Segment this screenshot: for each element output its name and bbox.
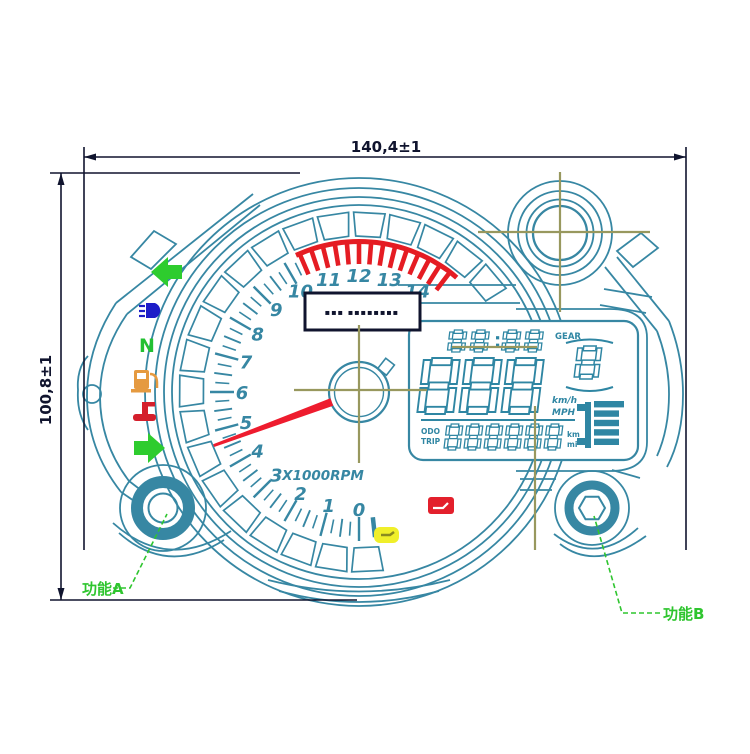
tach-tick: [239, 464, 251, 472]
height-dimension-label: 100,8±1: [37, 355, 55, 425]
speed-unit-mph: MPH: [552, 408, 576, 418]
button-a-ring: [137, 482, 189, 534]
tach-tick: [215, 401, 229, 402]
tach-tick: [243, 470, 257, 481]
tach-segment: [180, 375, 204, 407]
drawing-canvas: 01234567891011121314 X1000RPM GEAR km/h …: [0, 0, 750, 750]
warning-label-text: ▪▪▪ ▪▪▪▪▪▪▪▪: [325, 308, 399, 317]
function-a-label: 功能A: [82, 580, 124, 598]
tach-tick: [295, 509, 301, 522]
redline-bar: [436, 273, 449, 290]
housing-edge: [100, 314, 129, 481]
tach-tick: [264, 284, 273, 295]
warning-label-box: ▪▪▪ ▪▪▪▪▪▪▪▪: [305, 293, 420, 330]
tach-unit-label: X1000RPM: [281, 468, 364, 484]
redline-bar: [300, 255, 308, 274]
tach-tick: [218, 364, 232, 367]
tach-tick: [224, 336, 241, 343]
tach-segment: [387, 215, 420, 245]
tach-needle: [213, 398, 333, 447]
high-beam-indicator-icon: [139, 303, 160, 318]
fuel-pump-window: [137, 373, 146, 379]
fuel-pump-body: [134, 370, 149, 389]
button-b-center: [579, 497, 605, 520]
odo-unit-km: km: [567, 430, 580, 439]
oil-can-stem: [142, 402, 148, 415]
tach-scale-number: 8: [251, 324, 264, 345]
tach-tick: [340, 519, 342, 537]
width-dimension-label: 140,4±1: [351, 138, 421, 156]
oil-can-base: [133, 414, 156, 421]
fuel-warning-icon: [428, 497, 454, 514]
fuel-bar: [594, 429, 619, 435]
tach-segment: [352, 547, 384, 572]
high-beam-lamp: [146, 303, 160, 318]
tach-tick: [303, 510, 310, 527]
tach-tick: [223, 346, 236, 351]
tach-tick: [313, 515, 318, 528]
tach-scale-number: 13: [377, 270, 402, 291]
fuel-bar: [594, 401, 624, 407]
odo-unit-mi: mi: [567, 440, 577, 449]
tach-scale-number: 11: [316, 270, 341, 291]
engine-warning-icon: [374, 527, 399, 543]
redline-bar: [400, 251, 407, 271]
tach-tick: [251, 297, 262, 306]
tach-tick: [279, 500, 287, 512]
tach-tick: [270, 276, 281, 290]
tach-tick: [215, 353, 238, 359]
redline-bar: [311, 251, 318, 271]
mount-tab-hole: [83, 385, 101, 403]
colon-dot: [496, 336, 499, 339]
fuel-pump-hose: [150, 374, 157, 388]
housing-notch: [617, 233, 658, 267]
tach-tick: [230, 318, 251, 330]
redline-bar: [380, 245, 383, 266]
tach-tick: [215, 383, 229, 384]
neutral-indicator-icon: N: [139, 335, 155, 357]
tach-scale-number: 3: [270, 466, 283, 487]
tach-scale-number: 12: [346, 266, 371, 287]
dim-arrow-left: [84, 154, 96, 161]
tach-tick: [230, 449, 243, 455]
button-a-center: [149, 494, 178, 523]
tach-segment: [188, 306, 221, 341]
turn-left-indicator-icon: [151, 257, 182, 287]
tach-tick: [239, 312, 251, 320]
fuel-gauge-tab: [577, 438, 585, 445]
fuel-pump-base: [131, 389, 151, 393]
fuel-bar: [594, 420, 619, 426]
redline-bar: [347, 243, 349, 264]
tach-scale-number: 9: [270, 300, 283, 321]
dim-arrow-top: [58, 173, 65, 185]
button-b-ring: [569, 485, 615, 531]
redline-bar: [419, 260, 429, 279]
tach-tick: [331, 520, 334, 534]
tach-segment: [316, 544, 347, 572]
redline-bar: [335, 245, 338, 266]
tach-segment: [317, 212, 348, 240]
tach-tick: [214, 373, 232, 375]
tach-segment: [354, 212, 386, 237]
oil-pressure-indicator-icon: [133, 402, 156, 421]
speed-unit-kmh: km/h: [552, 396, 577, 406]
tach-segment: [180, 411, 209, 443]
tach-tick: [279, 272, 287, 284]
oil-can-spout: [148, 402, 155, 407]
fuel-warning-body: [428, 497, 454, 514]
redline-bar: [410, 255, 418, 274]
tach-scale-number: 6: [236, 383, 249, 404]
fuel-bar: [594, 410, 619, 416]
tach-segment: [283, 218, 317, 250]
redline-bar: [390, 247, 395, 267]
tach-segment: [281, 533, 316, 565]
tach-tick: [215, 424, 238, 430]
odo-label: ODO: [421, 427, 440, 436]
high-beam-rays: [139, 306, 145, 316]
redline-bar: [323, 247, 328, 267]
tach-scale-number: 0: [353, 500, 366, 521]
tach-tick: [264, 490, 273, 501]
tach-segment: [188, 441, 221, 476]
housing-edge: [268, 580, 450, 592]
low-fuel-indicator-icon: [131, 370, 157, 393]
dim-arrow-right: [674, 154, 686, 161]
callout-function-b: 功能B: [594, 516, 704, 623]
tach-tick: [243, 303, 257, 314]
fuel-bar: [594, 439, 619, 445]
tach-tick: [270, 494, 281, 508]
tach-segment: [180, 340, 209, 372]
tach-tick: [295, 263, 301, 276]
tach-tick: [350, 522, 351, 536]
needle: [213, 398, 333, 447]
tach-scale-number: 7: [240, 353, 253, 374]
housing-edge: [657, 331, 669, 456]
tach-tick: [251, 478, 262, 487]
tach-tick: [230, 328, 243, 334]
tach-tick: [218, 417, 232, 420]
tach-scale-number: 4: [250, 441, 264, 462]
housing-edge: [127, 205, 260, 314]
tach-scale-number: 1: [322, 496, 335, 517]
fuel-gauge-tab: [577, 404, 585, 411]
function-b-label: 功能B: [663, 605, 704, 623]
trip-label: TRIP: [421, 437, 441, 446]
tach-tick: [214, 409, 232, 411]
dim-arrow-bottom: [58, 588, 65, 600]
instrument-cluster-drawing: 01234567891011121314 X1000RPM GEAR km/h …: [0, 0, 750, 750]
housing-notch: [131, 231, 176, 269]
fuel-gauge-spine: [585, 402, 591, 448]
tach-tick: [230, 455, 251, 467]
redline-bar: [369, 243, 371, 264]
tach-scale-number: 2: [294, 484, 307, 505]
